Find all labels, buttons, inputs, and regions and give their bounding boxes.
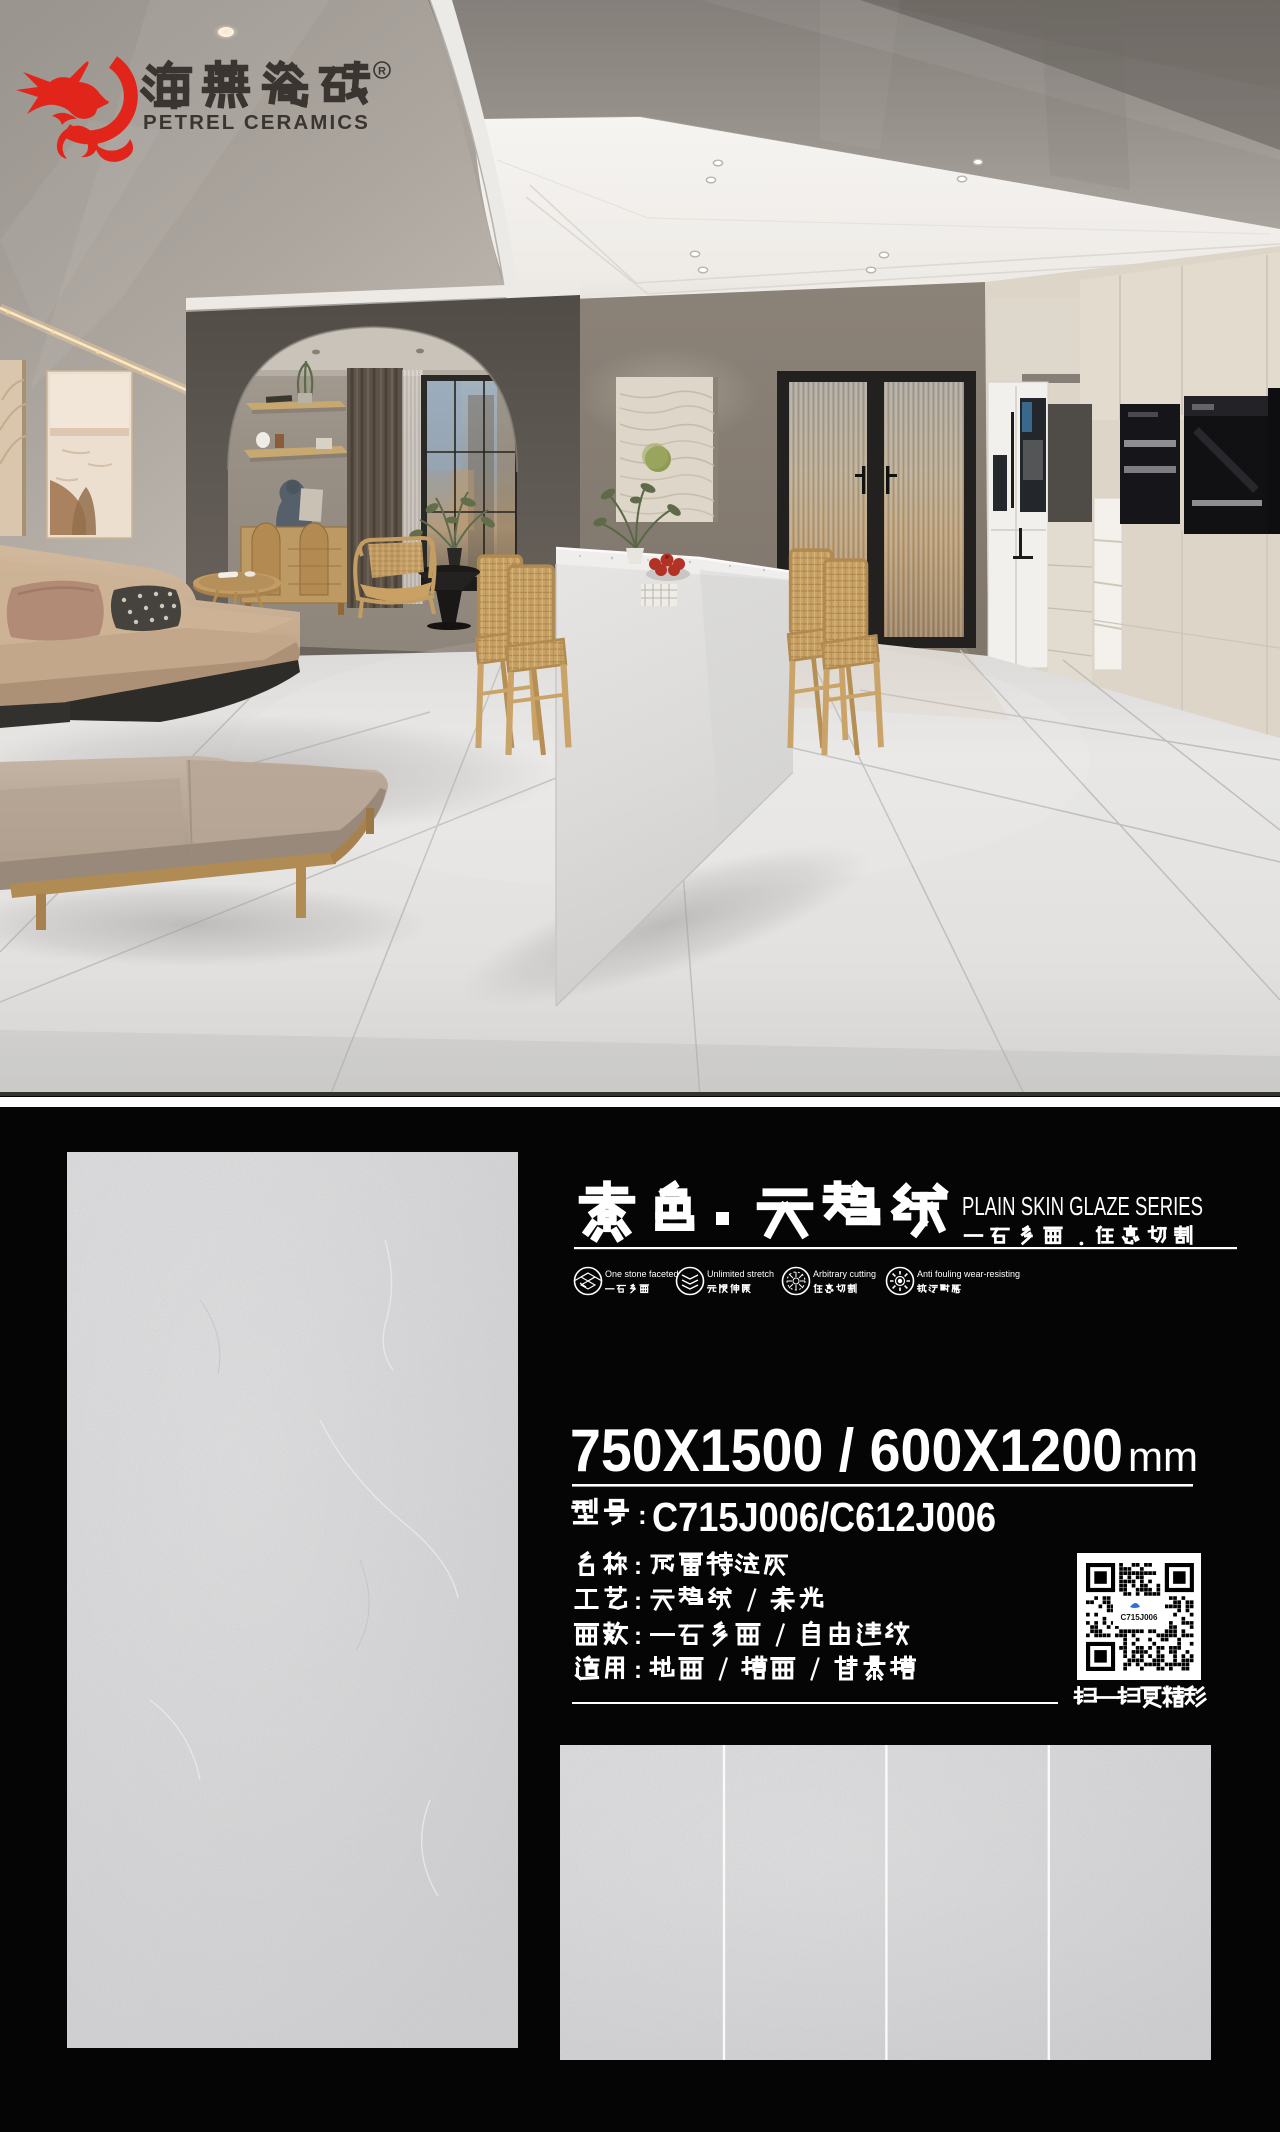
svg-text::: : [634,1657,642,1684]
svg-text::: : [634,1623,642,1650]
svg-text:Unlimited stretch: Unlimited stretch [707,1269,774,1279]
svg-text:mm: mm [1128,1433,1198,1480]
svg-text::: : [634,1588,642,1615]
svg-text::: : [638,1500,647,1530]
svg-text:R: R [378,66,386,78]
svg-text:750X1500 / 600X1200: 750X1500 / 600X1200 [570,1417,1123,1484]
svg-text::: : [634,1553,642,1580]
svg-text:Arbitrary cutting: Arbitrary cutting [813,1269,876,1279]
svg-text:C715J006: C715J006 [1121,1613,1158,1622]
svg-text:One stone faceted: One stone faceted [605,1269,679,1279]
svg-text:PLAIN SKIN GLAZE SERIES: PLAIN SKIN GLAZE SERIES [962,1191,1203,1221]
svg-text:C715J006/C612J006: C715J006/C612J006 [652,1494,996,1540]
svg-text:Anti fouling wear-resisting: Anti fouling wear-resisting [917,1269,1020,1279]
svg-text:PETREL CERAMICS: PETREL CERAMICS [143,111,372,134]
